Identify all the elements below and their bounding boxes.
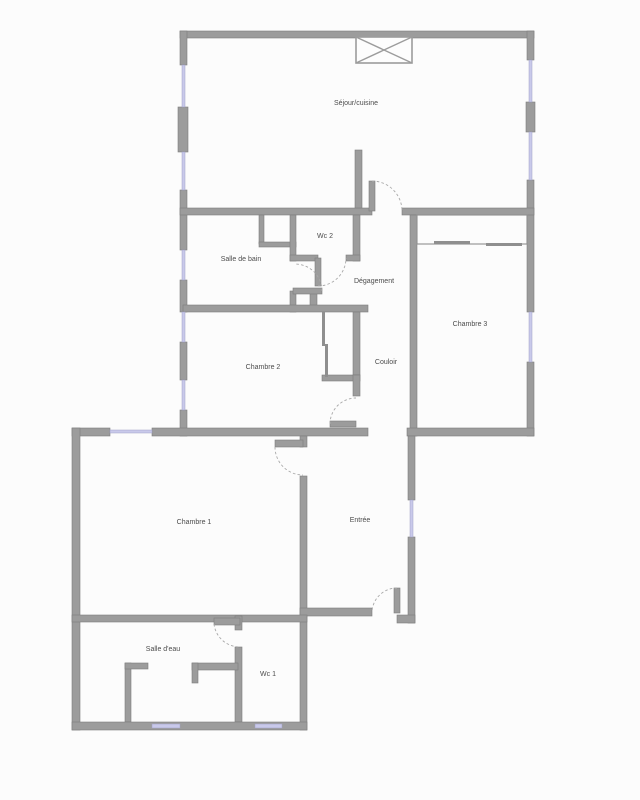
room-label-salle-d-eau: Salle d'eau bbox=[146, 646, 181, 653]
window bbox=[255, 724, 282, 728]
wall-segment bbox=[402, 208, 534, 215]
wall-segment bbox=[407, 428, 534, 436]
wall-segment bbox=[300, 608, 372, 616]
room-label-couloir: Couloir bbox=[375, 359, 398, 366]
wall-segment bbox=[300, 476, 307, 615]
door-swing-arc bbox=[372, 588, 397, 612]
room-label-chambre-3: Chambre 3 bbox=[453, 321, 488, 328]
wall-segment bbox=[125, 663, 148, 669]
wall-segment bbox=[180, 342, 187, 380]
door-leaf bbox=[315, 258, 321, 286]
wall-segment bbox=[290, 255, 318, 261]
room-label-wc-1: Wc 1 bbox=[260, 671, 276, 678]
room-label-chambre-1: Chambre 1 bbox=[177, 519, 212, 526]
door-swing-arc bbox=[275, 447, 303, 475]
window bbox=[529, 312, 532, 362]
window bbox=[182, 380, 185, 410]
wall-segment bbox=[152, 428, 368, 436]
labels-layer: Séjour/cuisine Wc 2 Salle de bain Dégage… bbox=[146, 100, 488, 678]
wall-segment bbox=[180, 208, 372, 215]
door-swing-arc bbox=[330, 398, 356, 424]
closet-sliding-door bbox=[322, 312, 325, 346]
wall-segment bbox=[180, 31, 187, 65]
door-swing-arc bbox=[372, 181, 402, 211]
door-leaf bbox=[275, 440, 303, 447]
wall-segment bbox=[72, 615, 307, 622]
closet-outline bbox=[417, 215, 527, 244]
door-leaf bbox=[293, 288, 322, 294]
window bbox=[182, 250, 185, 280]
wall-segment bbox=[259, 215, 264, 244]
wall-segment bbox=[353, 375, 360, 396]
door-leaf bbox=[330, 421, 356, 427]
wall-segment bbox=[290, 215, 296, 261]
floorplan-svg: Séjour/cuisine Wc 2 Salle de bain Dégage… bbox=[0, 0, 640, 800]
room-label-degagement: Dégagement bbox=[354, 278, 394, 285]
wall-segment bbox=[180, 190, 187, 250]
window bbox=[529, 60, 532, 102]
wall-segment bbox=[527, 31, 534, 60]
window bbox=[410, 500, 413, 537]
chimney-symbol bbox=[356, 37, 412, 63]
windows-layer bbox=[110, 60, 532, 728]
window bbox=[182, 152, 185, 190]
wall-segment bbox=[310, 293, 317, 306]
room-label-chambre-2: Chambre 2 bbox=[246, 364, 281, 371]
wall-segment bbox=[527, 362, 534, 436]
door-leaf bbox=[214, 618, 240, 625]
wall-segment bbox=[346, 255, 360, 261]
walls-layer bbox=[72, 31, 535, 730]
wall-segment bbox=[353, 215, 360, 261]
wall-segment bbox=[178, 107, 188, 152]
door-leaf bbox=[394, 588, 400, 613]
wall-segment bbox=[397, 615, 415, 623]
floorplan-page: Séjour/cuisine Wc 2 Salle de bain Dégage… bbox=[0, 0, 640, 800]
wall-segment bbox=[355, 150, 362, 208]
window bbox=[182, 65, 185, 107]
room-label-sejour-cuisine: Séjour/cuisine bbox=[334, 100, 378, 107]
window bbox=[182, 312, 185, 342]
wall-segment bbox=[192, 663, 238, 670]
closet-sliding-door bbox=[325, 344, 328, 377]
room-label-salle-de-bain: Salle de bain bbox=[221, 256, 262, 263]
room-label-entree: Entrée bbox=[350, 517, 371, 524]
wall-segment bbox=[353, 312, 360, 375]
wall-segment bbox=[408, 436, 415, 500]
wall-segment bbox=[527, 180, 534, 312]
wall-segment bbox=[410, 215, 417, 436]
door-leaf bbox=[369, 181, 375, 211]
door-swing-arc bbox=[318, 258, 346, 286]
wall-segment bbox=[125, 663, 131, 722]
closet-sliding-door bbox=[434, 241, 470, 244]
wall-segment bbox=[300, 615, 307, 730]
wall-segment bbox=[183, 305, 368, 312]
wall-segment bbox=[72, 428, 80, 730]
wall-segment bbox=[408, 537, 415, 623]
wall-segment bbox=[192, 663, 198, 683]
room-label-wc-2: Wc 2 bbox=[317, 233, 333, 240]
closet-sliding-door bbox=[486, 243, 522, 246]
window bbox=[110, 430, 152, 433]
wall-segment bbox=[526, 102, 535, 132]
wall-segment bbox=[235, 647, 242, 722]
window bbox=[529, 132, 532, 180]
doors-layer bbox=[214, 181, 402, 647]
window bbox=[152, 724, 180, 728]
